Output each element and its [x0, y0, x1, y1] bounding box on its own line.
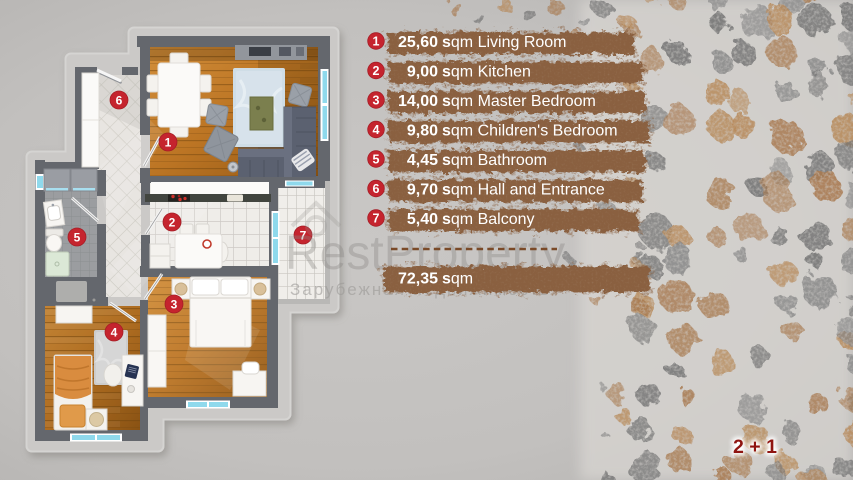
svg-text:7: 7: [373, 212, 380, 226]
svg-text:sqm Master Bedroom: sqm Master Bedroom: [442, 93, 596, 110]
svg-text:1: 1: [165, 136, 172, 150]
svg-text:5: 5: [74, 231, 81, 245]
svg-text:2: 2: [373, 64, 380, 78]
svg-text:4: 4: [111, 326, 118, 340]
svg-text:14,00: 14,00: [398, 93, 438, 110]
svg-text:6: 6: [373, 182, 380, 196]
svg-text:1: 1: [373, 35, 380, 49]
svg-text:sqm Kitchen: sqm Kitchen: [442, 64, 531, 81]
svg-text:6: 6: [116, 94, 123, 108]
svg-text:5,40: 5,40: [407, 211, 438, 228]
svg-text:sqm Hall and Entrance: sqm Hall and Entrance: [442, 182, 605, 199]
svg-text:sqm: sqm: [442, 271, 473, 288]
svg-text:9,70: 9,70: [407, 182, 438, 199]
svg-text:9,80: 9,80: [407, 123, 438, 140]
svg-text:sqm Living Room: sqm Living Room: [442, 34, 567, 51]
svg-text:2: 2: [169, 216, 176, 230]
svg-text:sqm Children's Bedroom: sqm Children's Bedroom: [442, 123, 618, 140]
svg-text:72,35: 72,35: [398, 271, 438, 288]
svg-text:4,45: 4,45: [407, 152, 438, 169]
svg-text:4: 4: [373, 123, 380, 137]
svg-text:9,00: 9,00: [407, 64, 438, 81]
svg-text:25,60: 25,60: [398, 34, 438, 51]
svg-text:3: 3: [373, 94, 380, 108]
svg-text:3: 3: [171, 298, 178, 312]
svg-text:sqm Bathroom: sqm Bathroom: [442, 152, 547, 169]
svg-text:5: 5: [373, 153, 380, 167]
svg-text:sqm Balcony: sqm Balcony: [442, 211, 535, 228]
svg-text:2 + 1: 2 + 1: [733, 436, 777, 458]
